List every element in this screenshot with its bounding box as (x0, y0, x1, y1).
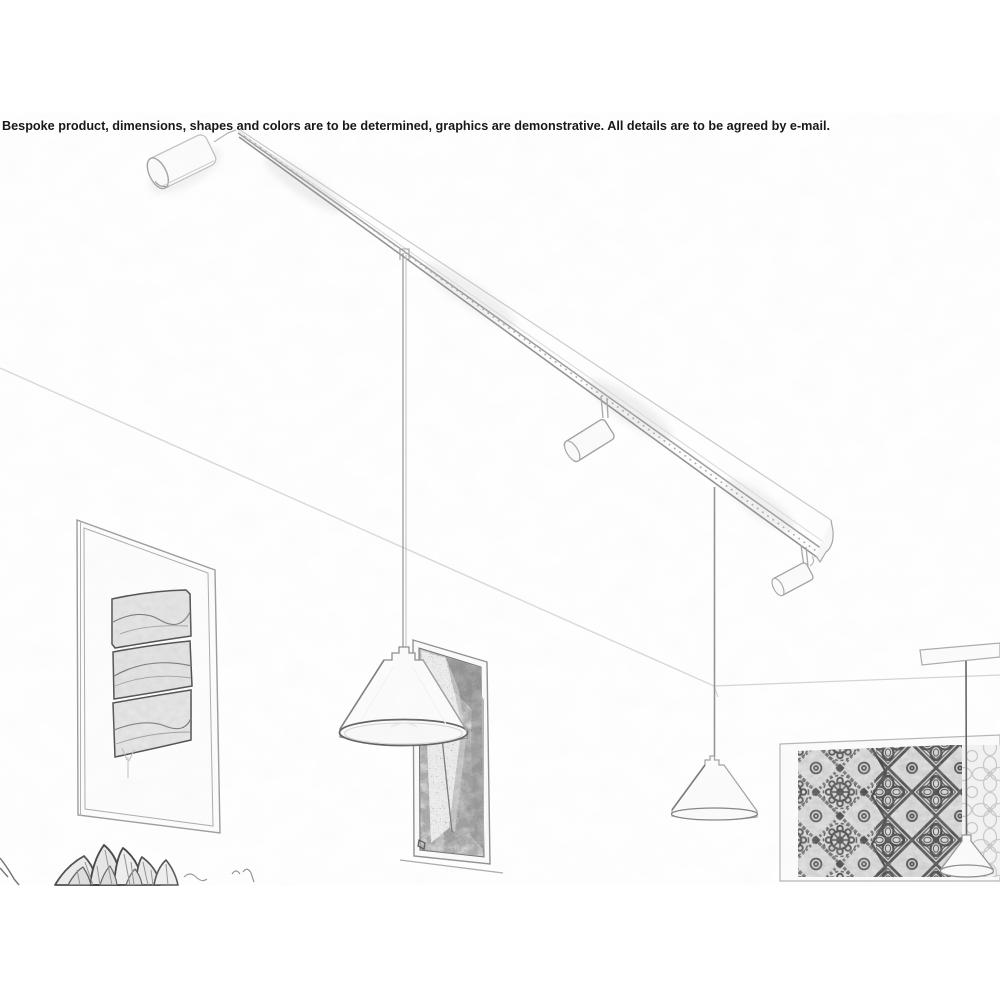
svg-text:Bespoke product, dimensions, s: Bespoke product, dimensions, shapes and … (2, 118, 830, 133)
